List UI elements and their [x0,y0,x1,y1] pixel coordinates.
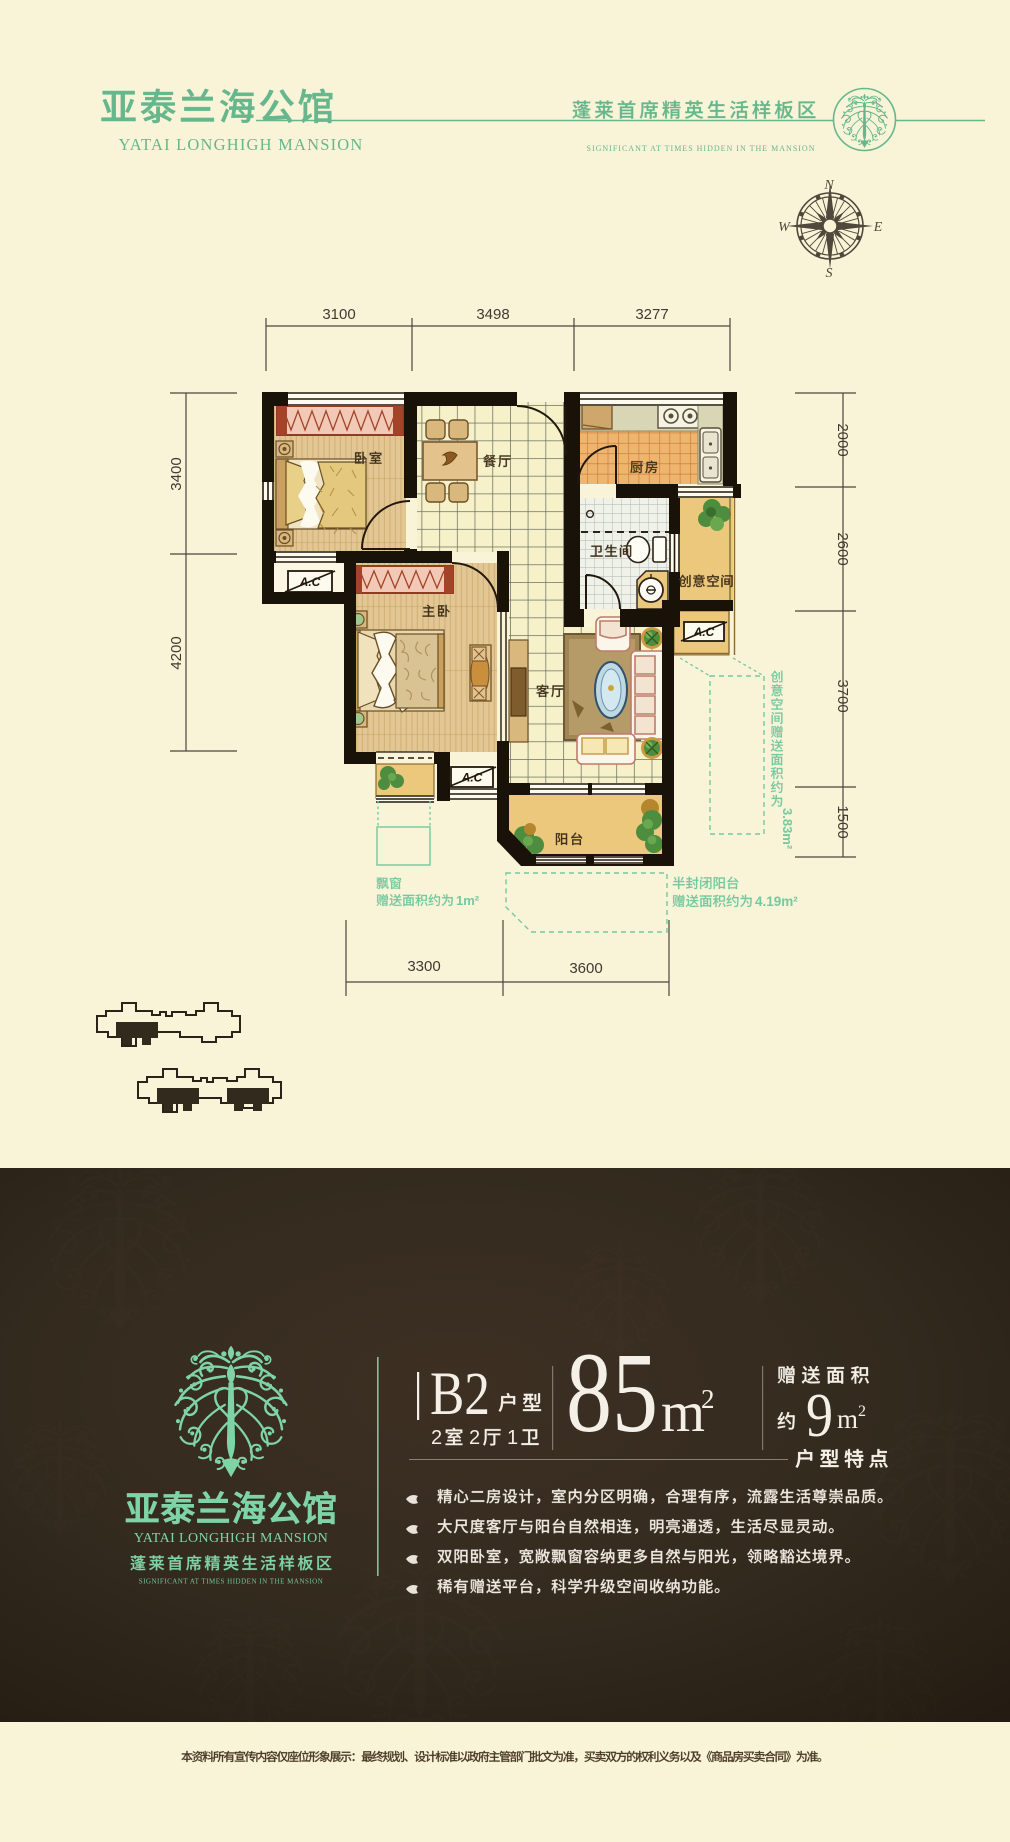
svg-text:3498: 3498 [476,306,509,323]
svg-text:3100: 3100 [322,306,355,323]
svg-text:2000: 2000 [834,423,851,456]
svg-text:3300: 3300 [407,958,440,975]
svg-text:4200: 4200 [168,636,185,669]
svg-text:1: 1 [507,1427,518,1449]
svg-text:85: 85 [566,1329,658,1456]
svg-text:4.19m²: 4.19m² [755,894,798,909]
svg-text:W: W [778,220,791,235]
svg-text:9: 9 [806,1382,833,1450]
svg-text:YATAI LONGHIGH MANSION: YATAI LONGHIGH MANSION [134,1531,328,1546]
svg-text:1500: 1500 [834,805,851,838]
svg-text:2: 2 [469,1427,480,1449]
svg-text:A.C: A.C [693,625,715,639]
svg-text:A.C: A.C [299,575,321,589]
svg-text:2: 2 [858,1403,866,1420]
svg-text:3400: 3400 [168,457,185,490]
svg-text:2600: 2600 [834,532,851,565]
svg-text:E: E [873,220,883,235]
svg-text:m: m [661,1381,705,1444]
svg-text:3.83m²: 3.83m² [780,808,795,850]
svg-text:3700: 3700 [834,679,851,712]
svg-text:N: N [823,178,834,193]
svg-text:1m²: 1m² [456,893,480,908]
svg-text:2: 2 [701,1384,715,1414]
svg-text:YATAI LONGHIGH MANSION: YATAI LONGHIGH MANSION [118,135,363,154]
svg-text:B2: B2 [430,1361,490,1428]
svg-text:3277: 3277 [635,306,668,323]
svg-text:2: 2 [431,1427,442,1449]
svg-text:A.C: A.C [461,771,483,785]
svg-text:S: S [826,266,833,281]
svg-text:3600: 3600 [569,960,602,977]
svg-text:SIGNIFICANT AT TIMES HIDDEN IN: SIGNIFICANT AT TIMES HIDDEN IN THE MANSI… [587,144,816,153]
svg-text:SIGNIFICANT AT TIMES HIDDEN IN: SIGNIFICANT AT TIMES HIDDEN IN THE MANSI… [139,1578,324,1586]
svg-text:m: m [837,1404,858,1434]
